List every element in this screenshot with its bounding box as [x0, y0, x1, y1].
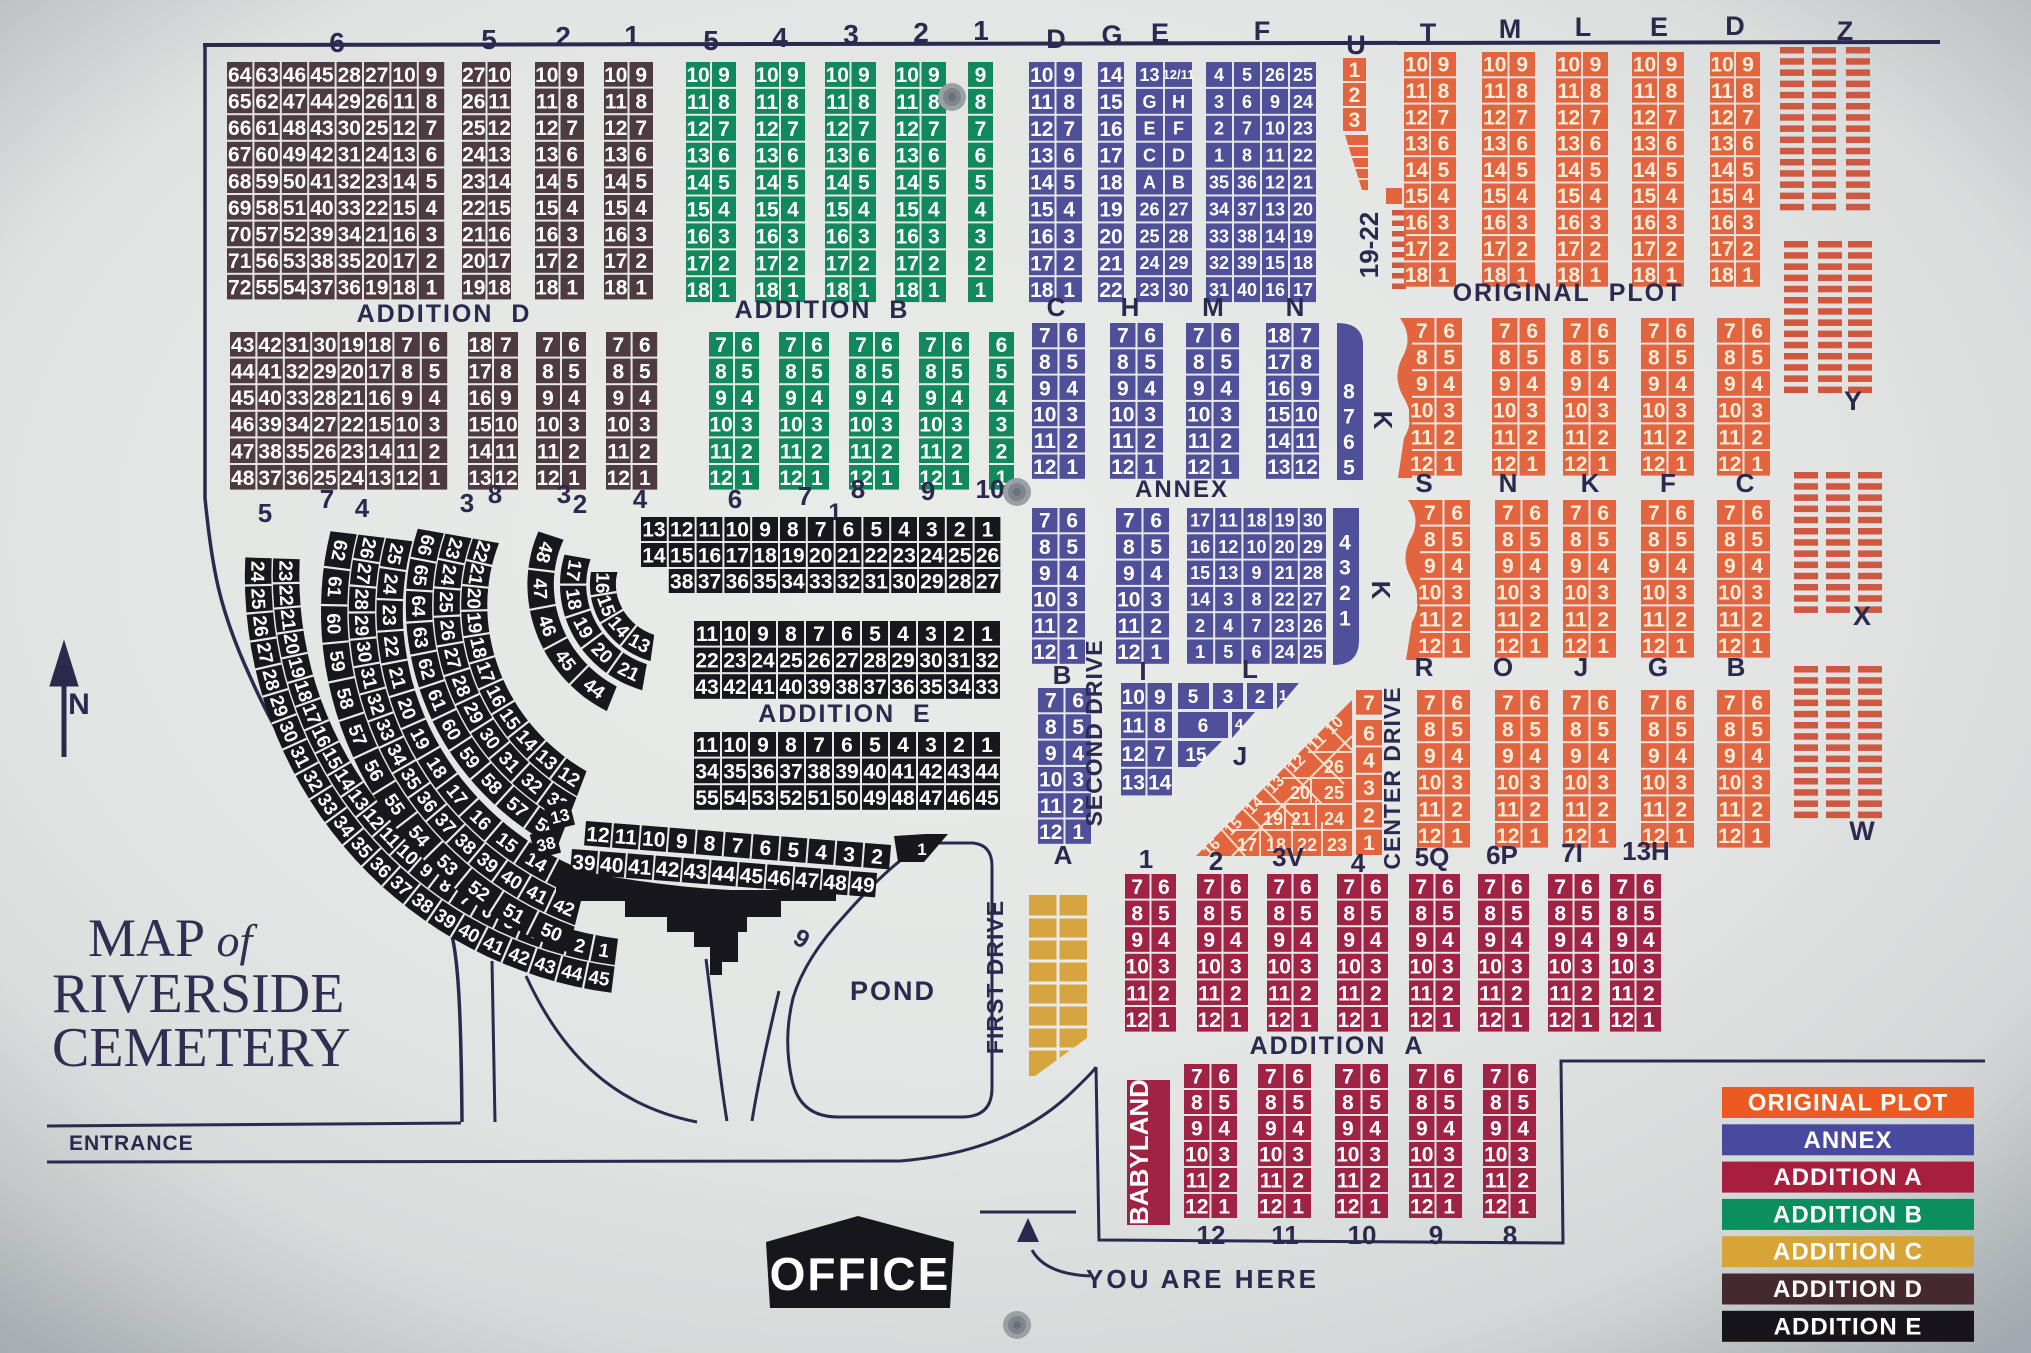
svg-text:13: 13 [604, 144, 627, 167]
svg-text:3: 3 [996, 414, 1008, 437]
svg-text:18: 18 [753, 545, 777, 568]
svg-text:40: 40 [1237, 280, 1257, 300]
svg-text:3: 3 [1066, 404, 1078, 427]
svg-text:2: 2 [787, 252, 799, 275]
svg-text:5: 5 [951, 361, 963, 384]
svg-text:13: 13 [686, 145, 709, 168]
svg-text:8: 8 [975, 91, 987, 114]
svg-text:3: 3 [1597, 772, 1609, 795]
svg-text:4: 4 [1235, 716, 1244, 733]
svg-text:3: 3 [1150, 589, 1162, 612]
svg-text:7: 7 [1242, 119, 1252, 139]
svg-text:9: 9 [1429, 1220, 1443, 1250]
svg-text:10: 10 [779, 414, 802, 437]
svg-text:44: 44 [231, 361, 255, 384]
svg-text:7: 7 [925, 334, 937, 357]
svg-text:8: 8 [858, 91, 870, 114]
svg-text:12: 12 [1479, 1009, 1502, 1032]
svg-text:4: 4 [1751, 373, 1763, 396]
svg-text:11: 11 [1219, 511, 1238, 531]
svg-text:17: 17 [896, 252, 919, 275]
svg-text:20: 20 [1275, 537, 1295, 557]
svg-text:8: 8 [1117, 351, 1129, 374]
svg-text:14: 14 [604, 170, 628, 193]
svg-text:7: 7 [1499, 320, 1511, 343]
svg-text:48: 48 [231, 467, 255, 490]
svg-text:40: 40 [310, 197, 333, 220]
svg-text:6: 6 [1343, 431, 1355, 454]
svg-text:YOU ARE HERE: YOU ARE HERE [1086, 1264, 1319, 1294]
svg-text:2: 2 [996, 440, 1008, 463]
svg-text:6: 6 [1443, 320, 1455, 343]
svg-text:5: 5 [975, 172, 987, 195]
svg-text:43: 43 [947, 761, 970, 784]
svg-text:3: 3 [1451, 582, 1463, 605]
svg-text:10: 10 [604, 64, 627, 87]
svg-text:ADDITION A: ADDITION A [1773, 1164, 1922, 1191]
svg-text:19: 19 [1263, 809, 1283, 829]
svg-text:10: 10 [1479, 956, 1502, 979]
svg-text:25: 25 [1324, 783, 1344, 803]
svg-text:9: 9 [1203, 929, 1215, 952]
svg-text:62: 62 [326, 538, 351, 563]
svg-text:9: 9 [1424, 745, 1436, 768]
svg-text:3: 3 [1443, 400, 1455, 423]
svg-text:19: 19 [1099, 199, 1122, 222]
svg-text:2: 2 [954, 519, 966, 542]
svg-text:12: 12 [1295, 456, 1318, 479]
svg-text:10: 10 [1493, 400, 1516, 423]
svg-text:10: 10 [1336, 1144, 1359, 1167]
svg-text:9: 9 [858, 64, 870, 87]
svg-text:23: 23 [462, 170, 485, 193]
svg-text:14: 14 [535, 170, 559, 193]
svg-text:13: 13 [1139, 65, 1159, 85]
svg-text:9: 9 [1039, 377, 1051, 400]
svg-text:3: 3 [1742, 212, 1754, 235]
svg-text:21: 21 [276, 608, 299, 632]
svg-text:9: 9 [1416, 373, 1428, 396]
svg-text:4: 4 [718, 199, 730, 222]
svg-text:1: 1 [1442, 1009, 1454, 1032]
svg-text:12: 12 [1030, 118, 1053, 141]
svg-text:32: 32 [975, 650, 998, 673]
svg-text:9: 9 [1570, 555, 1582, 578]
svg-text:10: 10 [1405, 54, 1428, 77]
svg-text:8: 8 [1416, 347, 1428, 370]
svg-text:7: 7 [928, 118, 940, 141]
svg-text:20: 20 [279, 632, 303, 657]
svg-text:12: 12 [1265, 173, 1285, 193]
svg-text:22: 22 [865, 545, 888, 568]
svg-text:3: 3 [1363, 777, 1375, 800]
svg-text:5: 5 [787, 839, 801, 863]
svg-text:3: 3 [1292, 1144, 1304, 1167]
svg-text:8: 8 [718, 91, 730, 114]
svg-text:64: 64 [407, 596, 428, 618]
svg-text:5: 5 [1529, 529, 1541, 552]
svg-text:R: R [1415, 652, 1434, 682]
svg-text:4: 4 [951, 387, 963, 410]
svg-text:11: 11 [1419, 608, 1442, 631]
svg-text:6: 6 [741, 334, 753, 357]
svg-text:15: 15 [392, 197, 416, 220]
svg-text:3: 3 [1063, 225, 1075, 248]
svg-text:8: 8 [715, 361, 727, 384]
svg-text:10: 10 [723, 623, 746, 646]
svg-text:29: 29 [1168, 253, 1188, 273]
svg-text:17: 17 [392, 250, 415, 273]
svg-text:10: 10 [1111, 404, 1134, 427]
svg-text:12: 12 [535, 117, 558, 140]
svg-text:25: 25 [246, 588, 268, 611]
svg-text:34: 34 [286, 414, 310, 437]
svg-text:6: 6 [426, 144, 438, 167]
svg-text:2: 2 [1443, 426, 1455, 449]
svg-text:2: 2 [1349, 84, 1361, 107]
svg-text:2: 2 [566, 250, 578, 273]
svg-text:18: 18 [1267, 325, 1291, 348]
svg-text:3: 3 [1529, 582, 1541, 605]
svg-text:5: 5 [1220, 351, 1232, 374]
svg-text:CENTER DRIVE: CENTER DRIVE [1379, 686, 1405, 869]
svg-text:5: 5 [1516, 159, 1528, 182]
svg-text:12: 12 [1336, 1196, 1359, 1219]
svg-text:41: 41 [310, 170, 334, 193]
svg-text:1: 1 [1751, 635, 1763, 658]
svg-text:3: 3 [568, 414, 580, 437]
svg-text:2: 2 [951, 440, 963, 463]
svg-text:2: 2 [1144, 430, 1156, 453]
svg-text:59: 59 [255, 170, 278, 193]
svg-text:12: 12 [755, 118, 778, 141]
svg-text:11: 11 [1112, 430, 1135, 453]
svg-text:8: 8 [566, 91, 578, 114]
svg-text:15: 15 [468, 414, 492, 437]
svg-text:28: 28 [338, 64, 362, 87]
svg-text:36: 36 [286, 467, 309, 490]
svg-text:10: 10 [1295, 404, 1318, 427]
svg-text:7I: 7I [1561, 838, 1583, 868]
svg-text:8: 8 [1666, 80, 1678, 103]
svg-text:8: 8 [1516, 80, 1528, 103]
svg-text:8: 8 [1570, 719, 1582, 742]
svg-text:7: 7 [1570, 320, 1582, 343]
svg-text:8: 8 [851, 474, 865, 504]
svg-text:7: 7 [1415, 876, 1427, 899]
svg-text:9: 9 [1648, 373, 1660, 396]
svg-text:37: 37 [310, 277, 333, 300]
svg-text:7: 7 [1424, 692, 1436, 715]
svg-text:4: 4 [1144, 377, 1156, 400]
svg-text:23: 23 [1293, 119, 1313, 139]
svg-text:3: 3 [718, 225, 730, 248]
svg-text:72: 72 [228, 277, 251, 300]
svg-text:14: 14 [896, 172, 920, 195]
svg-text:40: 40 [779, 676, 802, 699]
svg-text:4: 4 [1438, 185, 1450, 208]
svg-text:9: 9 [500, 387, 512, 410]
svg-text:6: 6 [787, 145, 799, 168]
svg-text:25: 25 [1139, 226, 1159, 246]
svg-text:6: 6 [1443, 1066, 1455, 1089]
svg-text:11: 11 [1494, 426, 1517, 449]
svg-text:11: 11 [687, 91, 710, 114]
svg-text:7: 7 [1343, 406, 1355, 429]
svg-text:59: 59 [325, 649, 349, 673]
svg-text:45: 45 [231, 387, 255, 410]
svg-text:27: 27 [313, 414, 336, 437]
svg-text:6: 6 [1370, 876, 1382, 899]
svg-text:3: 3 [1517, 1144, 1529, 1167]
svg-text:23: 23 [274, 560, 295, 581]
svg-text:16: 16 [1099, 118, 1122, 141]
svg-text:11: 11 [1410, 982, 1433, 1005]
svg-text:1: 1 [1675, 825, 1687, 848]
svg-text:5: 5 [1751, 719, 1763, 742]
svg-text:8: 8 [1648, 529, 1660, 552]
svg-text:3: 3 [1144, 404, 1156, 427]
svg-text:10: 10 [1418, 582, 1441, 605]
svg-text:5: 5 [811, 361, 823, 384]
svg-text:6: 6 [1300, 876, 1312, 899]
svg-text:9: 9 [718, 64, 730, 87]
svg-text:55: 55 [255, 277, 279, 300]
svg-text:61: 61 [255, 117, 279, 140]
svg-text:10: 10 [392, 64, 415, 87]
svg-text:7: 7 [1300, 325, 1312, 348]
svg-text:11: 11 [1034, 430, 1057, 453]
svg-text:1: 1 [566, 277, 578, 300]
svg-text:1: 1 [1597, 635, 1609, 658]
svg-text:17: 17 [604, 250, 627, 273]
svg-text:9: 9 [715, 387, 727, 410]
svg-text:10: 10 [1410, 956, 1433, 979]
svg-text:9: 9 [1570, 745, 1582, 768]
svg-text:10: 10 [395, 414, 418, 437]
svg-text:21: 21 [837, 545, 861, 568]
svg-text:8: 8 [542, 361, 554, 384]
svg-text:46: 46 [231, 414, 254, 437]
svg-text:6: 6 [759, 837, 772, 861]
svg-text:A: A [1143, 173, 1156, 193]
svg-text:7: 7 [612, 334, 624, 357]
svg-text:14: 14 [1190, 590, 1210, 610]
svg-text:24: 24 [1139, 253, 1159, 273]
svg-text:9: 9 [1191, 1118, 1203, 1141]
svg-text:9: 9 [1724, 555, 1736, 578]
svg-text:10: 10 [1718, 400, 1741, 423]
svg-text:46: 46 [767, 866, 792, 891]
svg-text:10: 10 [1030, 64, 1053, 87]
svg-text:9: 9 [1300, 377, 1312, 400]
svg-text:10: 10 [607, 414, 630, 437]
svg-text:4: 4 [858, 199, 870, 222]
svg-text:9: 9 [1154, 686, 1166, 709]
svg-text:7: 7 [858, 118, 870, 141]
svg-text:12: 12 [1259, 1196, 1282, 1219]
svg-text:3: 3 [925, 734, 937, 757]
svg-text:16: 16 [392, 224, 415, 247]
svg-text:21: 21 [365, 224, 389, 247]
svg-text:3: 3 [928, 225, 940, 248]
svg-text:12: 12 [1633, 106, 1656, 129]
svg-text:10: 10 [1484, 1144, 1507, 1167]
svg-text:6: 6 [1597, 502, 1609, 525]
svg-text:3: 3 [925, 623, 937, 646]
svg-text:1: 1 [1150, 641, 1162, 664]
svg-text:7: 7 [1648, 320, 1660, 343]
svg-text:7: 7 [813, 734, 825, 757]
svg-text:37: 37 [863, 676, 886, 699]
svg-text:1: 1 [1517, 1196, 1529, 1219]
svg-text:3: 3 [1223, 590, 1233, 610]
svg-text:10: 10 [1122, 686, 1145, 709]
svg-text:8: 8 [1039, 351, 1051, 374]
svg-text:16: 16 [604, 224, 627, 247]
svg-text:13: 13 [1267, 456, 1290, 479]
svg-text:8: 8 [1648, 719, 1660, 742]
svg-text:62: 62 [255, 91, 278, 114]
svg-text:5: 5 [1066, 536, 1078, 559]
svg-text:9: 9 [757, 734, 769, 757]
svg-text:60: 60 [322, 613, 344, 635]
svg-text:11: 11 [780, 440, 803, 463]
svg-text:8: 8 [1484, 903, 1496, 926]
svg-text:9: 9 [1554, 929, 1566, 952]
svg-text:11: 11 [696, 734, 719, 757]
svg-text:21: 21 [463, 562, 487, 587]
svg-text:2: 2 [1158, 982, 1170, 1005]
svg-text:10: 10 [686, 64, 709, 87]
svg-text:13: 13 [642, 519, 665, 542]
svg-text:3: 3 [811, 414, 823, 437]
svg-text:9: 9 [1123, 562, 1135, 585]
svg-text:3: 3 [1214, 92, 1224, 112]
svg-text:24: 24 [1275, 642, 1295, 662]
svg-text:12: 12 [1483, 106, 1506, 129]
svg-text:40: 40 [599, 853, 624, 878]
svg-text:8: 8 [1490, 1092, 1502, 1115]
svg-text:4: 4 [928, 199, 940, 222]
svg-text:5: 5 [639, 361, 651, 384]
svg-text:11: 11 [1643, 798, 1666, 821]
svg-text:B: B [1727, 652, 1746, 682]
svg-text:29: 29 [920, 571, 943, 594]
svg-text:6: 6 [1369, 1066, 1381, 1089]
svg-text:1: 1 [975, 279, 987, 302]
svg-text:2: 2 [811, 440, 823, 463]
svg-text:1: 1 [635, 277, 647, 300]
svg-text:27: 27 [462, 64, 485, 87]
svg-text:17: 17 [686, 252, 709, 275]
svg-text:8: 8 [1590, 80, 1602, 103]
svg-text:12: 12 [1410, 1196, 1433, 1219]
svg-text:7: 7 [500, 334, 512, 357]
svg-text:7: 7 [718, 118, 730, 141]
svg-text:9: 9 [757, 623, 769, 646]
svg-text:11: 11 [1031, 91, 1054, 114]
svg-text:20: 20 [341, 361, 364, 384]
svg-text:7: 7 [566, 117, 578, 140]
svg-text:30: 30 [1168, 280, 1188, 300]
svg-text:2: 2 [1363, 805, 1375, 828]
svg-text:1: 1 [741, 467, 753, 490]
svg-text:69: 69 [228, 197, 251, 220]
svg-text:7: 7 [1554, 876, 1566, 899]
svg-text:10: 10 [1710, 54, 1733, 77]
svg-text:11: 11 [1034, 615, 1057, 638]
svg-text:3: 3 [429, 414, 441, 437]
svg-text:10: 10 [1126, 956, 1149, 979]
svg-text:12: 12 [1111, 456, 1134, 479]
svg-text:26: 26 [807, 650, 830, 673]
svg-text:18: 18 [1293, 253, 1313, 273]
svg-text:15: 15 [1483, 185, 1507, 208]
svg-text:OFFICE: OFFICE [770, 1248, 951, 1300]
svg-text:3: 3 [1751, 772, 1763, 795]
svg-text:10: 10 [1187, 404, 1210, 427]
svg-text:5: 5 [1529, 719, 1541, 742]
svg-text:2: 2 [1300, 982, 1312, 1005]
svg-text:23: 23 [365, 170, 388, 193]
svg-text:7: 7 [1616, 876, 1628, 899]
svg-text:34: 34 [1209, 199, 1229, 219]
svg-text:7: 7 [1343, 876, 1355, 899]
svg-text:36: 36 [338, 277, 361, 300]
svg-text:U: U [1346, 30, 1366, 60]
svg-text:9: 9 [426, 64, 438, 87]
svg-text:7: 7 [1265, 1066, 1277, 1089]
svg-text:4: 4 [568, 387, 580, 410]
svg-text:5: 5 [1223, 642, 1233, 662]
svg-text:8: 8 [1191, 1092, 1203, 1115]
svg-text:41: 41 [258, 361, 282, 384]
svg-text:26: 26 [1139, 199, 1159, 219]
svg-text:12: 12 [1710, 106, 1733, 129]
svg-text:9: 9 [1590, 54, 1602, 77]
svg-text:32: 32 [1209, 253, 1229, 273]
svg-text:2: 2 [1643, 982, 1655, 1005]
svg-text:50: 50 [283, 170, 306, 193]
svg-text:38: 38 [807, 761, 831, 784]
svg-text:3: 3 [1590, 212, 1602, 235]
svg-text:17: 17 [1405, 238, 1428, 261]
svg-text:17: 17 [368, 361, 391, 384]
svg-text:26: 26 [355, 536, 380, 561]
svg-text:15: 15 [535, 197, 559, 220]
svg-text:2: 2 [1218, 1170, 1230, 1193]
svg-text:10: 10 [1418, 772, 1441, 795]
svg-text:28: 28 [1303, 563, 1323, 583]
svg-text:2: 2 [1581, 982, 1593, 1005]
svg-text:5: 5 [1742, 159, 1754, 182]
svg-text:7: 7 [1203, 876, 1215, 899]
svg-text:47: 47 [795, 868, 820, 893]
svg-text:2: 2 [1675, 608, 1687, 631]
svg-text:11: 11 [607, 440, 630, 463]
svg-text:29: 29 [1303, 537, 1323, 557]
svg-text:1: 1 [1230, 1009, 1242, 1032]
svg-text:2: 2 [635, 250, 647, 273]
svg-text:23: 23 [723, 650, 746, 673]
svg-text:42: 42 [919, 761, 942, 784]
svg-text:5: 5 [1218, 1092, 1230, 1115]
svg-text:44: 44 [975, 761, 999, 784]
svg-text:14: 14 [1267, 430, 1291, 453]
svg-text:54: 54 [283, 277, 307, 300]
svg-text:10: 10 [1268, 956, 1291, 979]
